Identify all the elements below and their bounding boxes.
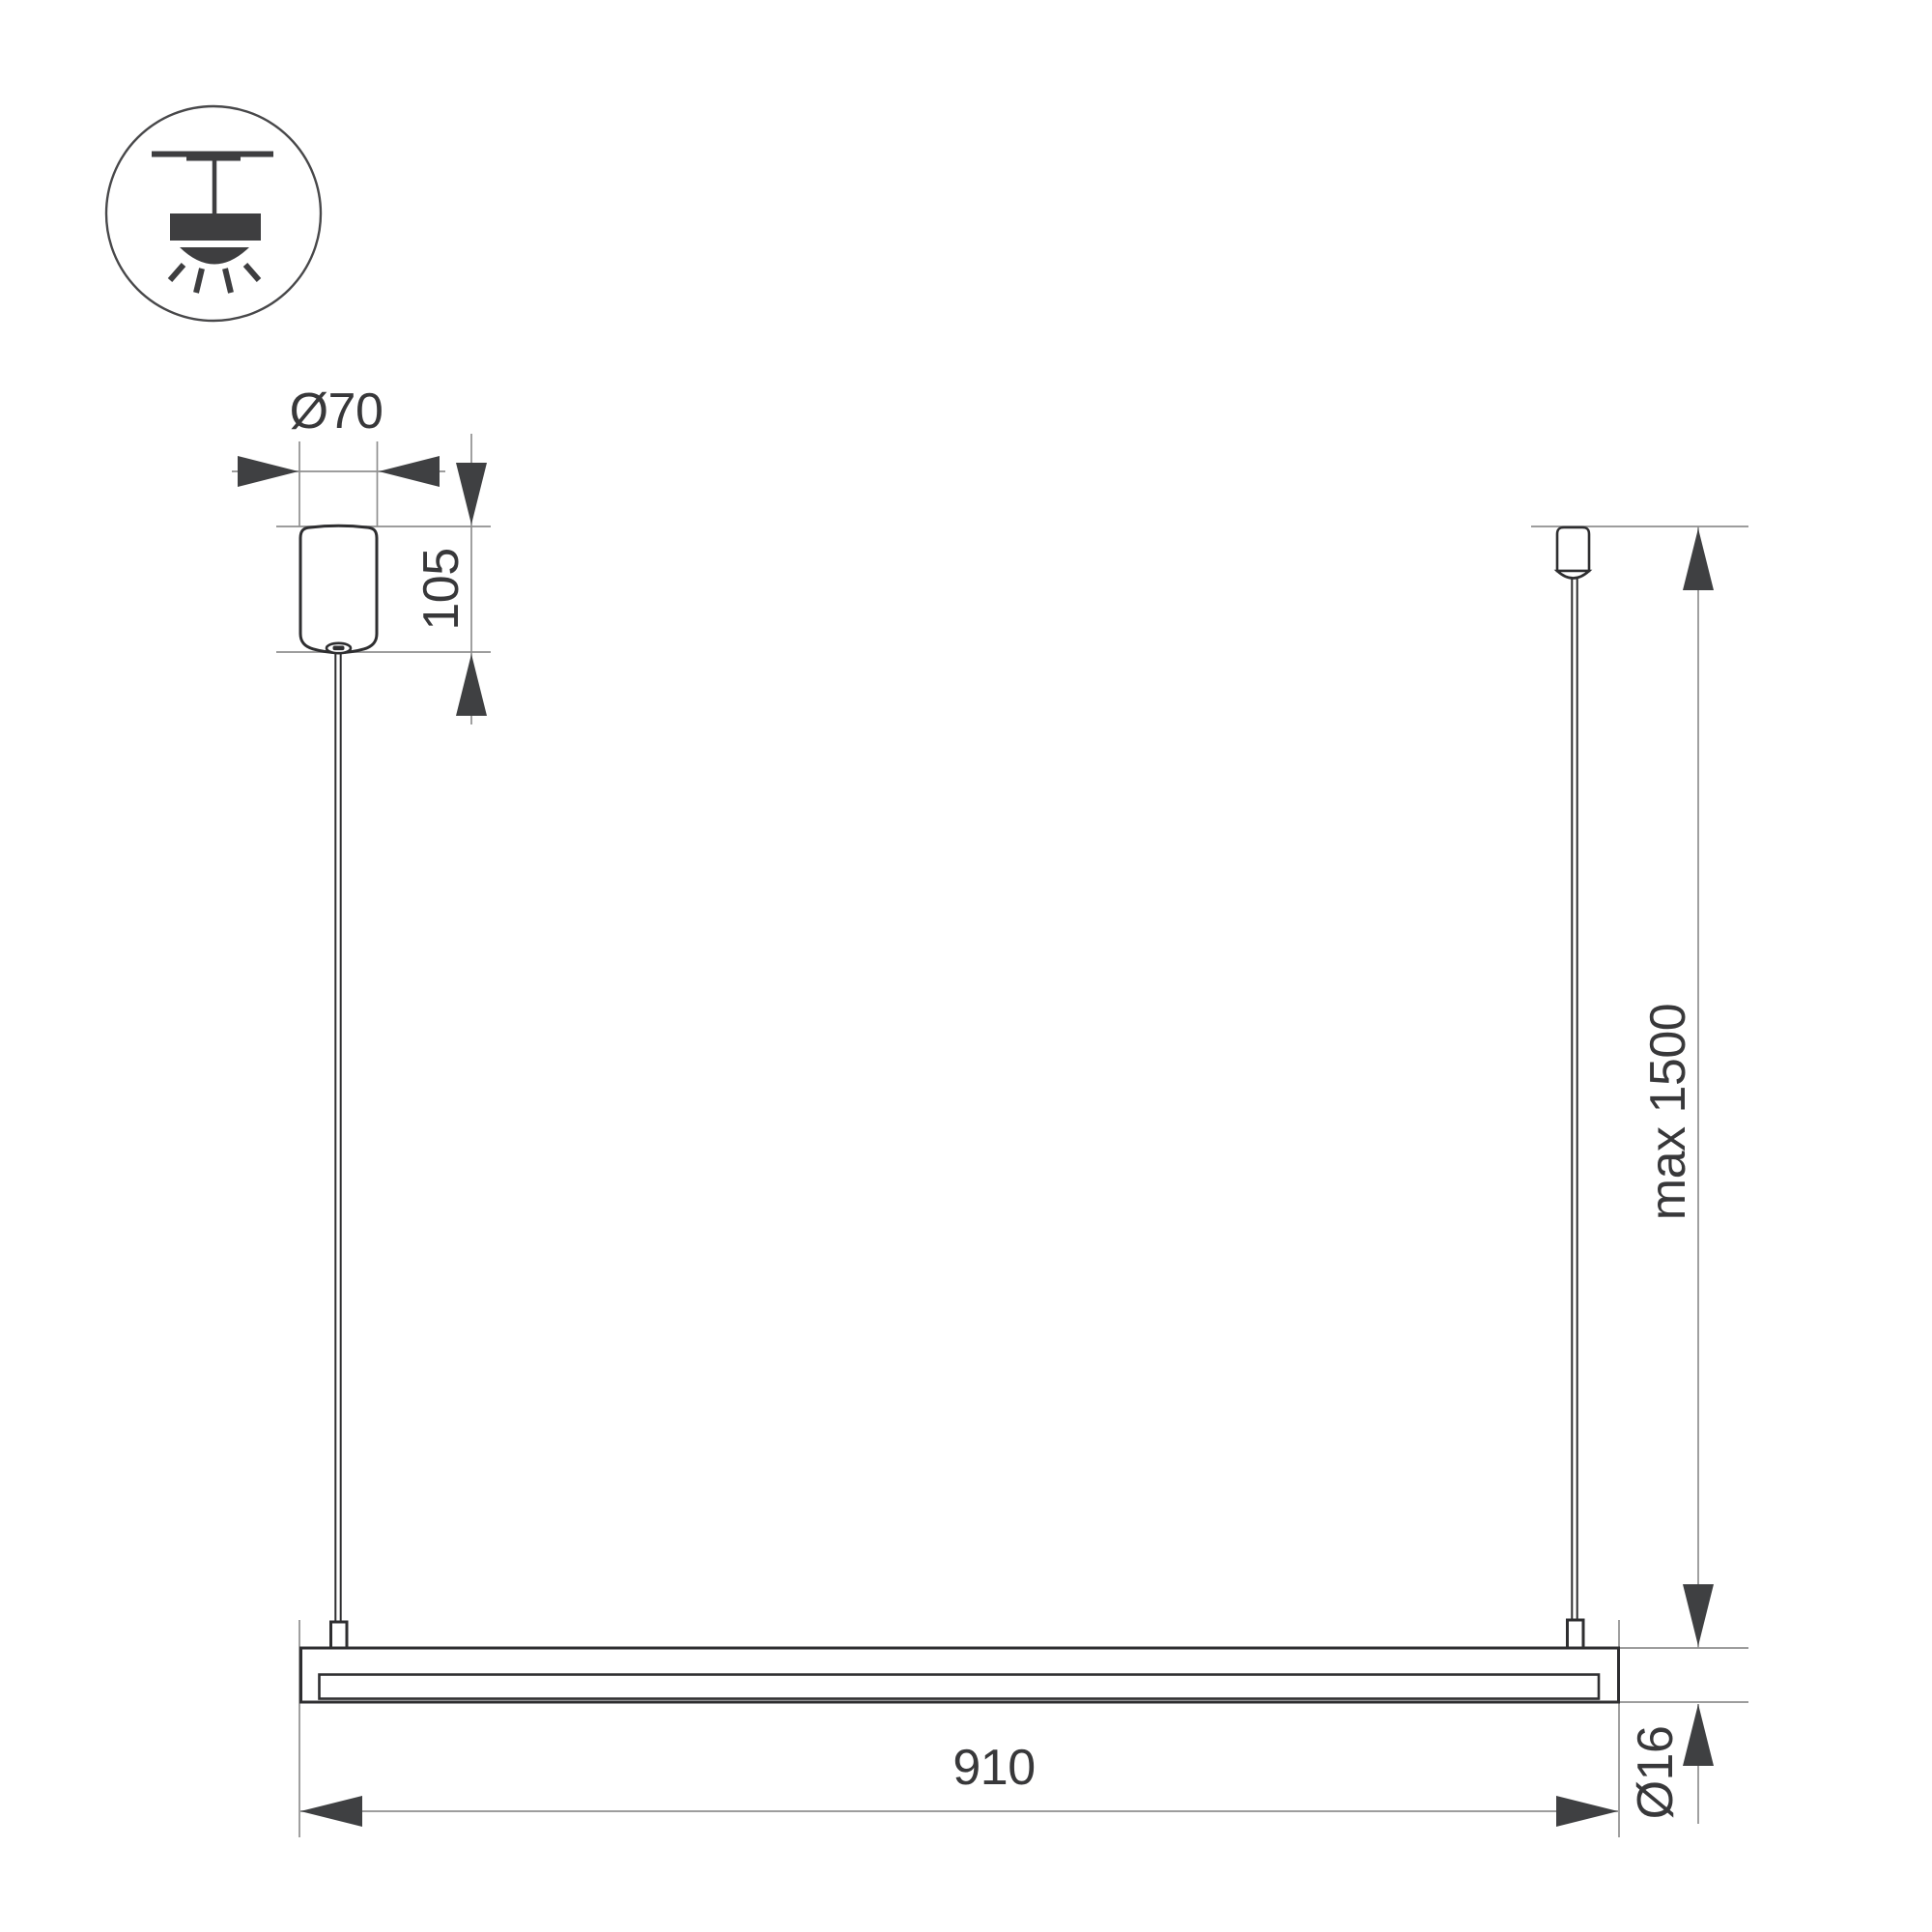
arrowhead-down-icon (1683, 1584, 1714, 1646)
ceiling-pendant-mount-icon (106, 106, 321, 321)
dim-max-suspension: max 1500 (1531, 526, 1748, 1648)
icon-lamp-dome (180, 247, 249, 265)
dim-tube-diameter: Ø16 (1619, 1702, 1748, 1824)
light-ray (225, 269, 231, 293)
technical-drawing-canvas: Ø70 105 max 1500 Ø16 910 (0, 0, 1932, 1932)
dim-label-canopy-diameter: Ø70 (290, 384, 384, 440)
light-ray (245, 265, 259, 280)
arrowhead-up-icon (1683, 528, 1714, 590)
light-ray (196, 269, 202, 293)
arrowhead-left-icon (379, 456, 440, 487)
light-bar (301, 1648, 1619, 1702)
dim-label-canopy-height: 105 (413, 548, 469, 630)
arrowhead-right-icon (238, 456, 298, 487)
cable-gland-slot (333, 646, 345, 651)
dim-label-max-suspension: max 1500 (1640, 1004, 1696, 1220)
ceiling-cap-right (1557, 527, 1589, 579)
arrowhead-down-icon (456, 463, 487, 525)
dim-label-tube-diameter: Ø16 (1628, 1726, 1684, 1820)
ceiling-canopy (300, 526, 377, 653)
light-ray (170, 265, 184, 280)
drawing-page: Ø70 105 max 1500 Ø16 910 (0, 0, 1932, 1932)
suspension-cable-left (335, 652, 340, 1624)
cable-grip-left (331, 1622, 348, 1648)
cap-body (1557, 527, 1589, 571)
arrowhead-right-icon (1556, 1796, 1618, 1827)
arrowhead-up-icon (1683, 1704, 1714, 1766)
icon-light-rays (170, 265, 259, 293)
dim-label-fixture-length: 910 (952, 1740, 1035, 1796)
dim-canopy-diameter: Ø70 (232, 384, 445, 526)
canopy-body (300, 526, 377, 652)
cable-grip-right (1568, 1620, 1584, 1648)
arrowhead-up-icon (456, 654, 487, 716)
cap-bottom-arc (1557, 571, 1589, 579)
icon-lamp-body (170, 213, 261, 241)
arrowhead-left-icon (300, 1796, 362, 1827)
suspension-cable-right (1572, 574, 1577, 1624)
